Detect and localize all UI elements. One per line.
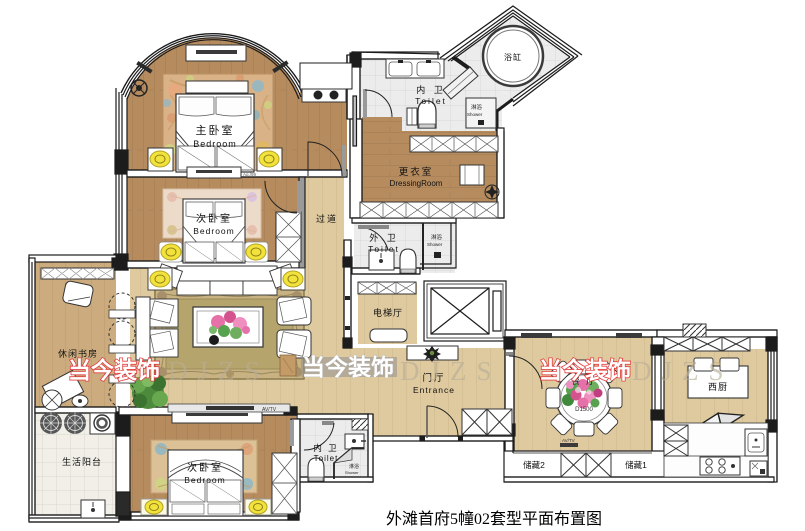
svg-text:淋浴: 淋浴: [431, 233, 443, 241]
svg-text:储藏2: 储藏2: [523, 460, 545, 470]
svg-text:Bedroom: Bedroom: [193, 226, 235, 236]
svg-text:外 卫: 外 卫: [369, 232, 399, 243]
svg-text:Toilet: Toilet: [368, 244, 400, 254]
svg-text:Toilet: Toilet: [415, 96, 447, 106]
svg-text:生活阳台: 生活阳台: [62, 456, 102, 467]
svg-text:DJZS: DJZS: [400, 356, 502, 386]
svg-text:Shower: Shower: [345, 470, 359, 475]
svg-text:AV/TV: AV/TV: [262, 407, 277, 413]
svg-text:过道: 过道: [316, 213, 338, 224]
svg-text:Toilet: Toilet: [314, 454, 339, 463]
svg-text:内 卫: 内 卫: [416, 84, 446, 95]
svg-text:次卧室: 次卧室: [187, 461, 223, 474]
svg-text:次卧室: 次卧室: [196, 212, 232, 225]
svg-text:当今装饰: 当今装饰: [539, 357, 631, 383]
svg-text:更衣室: 更衣室: [399, 166, 434, 178]
svg-text:当今装饰: 当今装饰: [302, 354, 394, 380]
svg-text:主卧室: 主卧室: [196, 123, 235, 137]
svg-text:Entrance: Entrance: [413, 385, 455, 395]
svg-text:浴缸: 浴缸: [504, 52, 522, 62]
svg-text:电梯厅: 电梯厅: [373, 307, 403, 318]
svg-text:Shower: Shower: [427, 242, 443, 247]
svg-text:淋浴: 淋浴: [349, 463, 359, 470]
svg-text:淋浴: 淋浴: [471, 103, 483, 111]
svg-text:外滩首府5幢02套型平面布置图: 外滩首府5幢02套型平面布置图: [386, 510, 602, 528]
svg-text:DJZS: DJZS: [168, 356, 270, 386]
svg-text:D1500: D1500: [575, 407, 593, 413]
svg-text:AV/TV: AV/TV: [562, 438, 575, 443]
svg-text:当今装饰: 当今装饰: [68, 357, 160, 383]
svg-text:Shower: Shower: [467, 112, 483, 117]
svg-text:Ag./99: Ag./99: [243, 172, 257, 177]
svg-text:DJZS: DJZS: [632, 356, 734, 386]
svg-text:内 卫: 内 卫: [313, 443, 338, 453]
svg-text:Bedroom: Bedroom: [193, 139, 237, 149]
svg-text:DressingRoom: DressingRoom: [390, 179, 443, 188]
svg-text:Bedroom: Bedroom: [184, 475, 226, 485]
svg-text:储藏1: 储藏1: [625, 460, 647, 470]
